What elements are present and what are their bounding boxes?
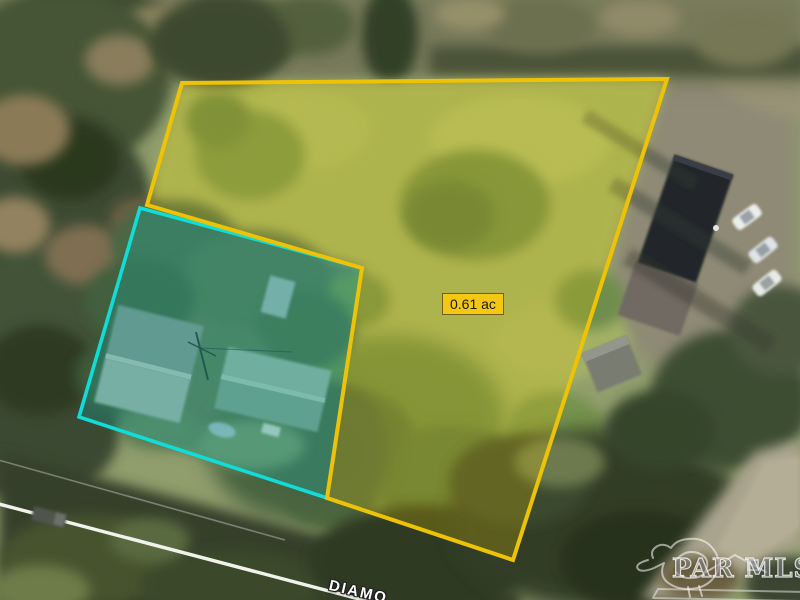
- parcel-area-label: 0.61 ac: [442, 293, 504, 315]
- map-scene: [0, 0, 800, 600]
- yard-object: [713, 225, 719, 231]
- mls-watermark-text: PAR MLS: [672, 554, 800, 584]
- aerial-map: 0.61 ac DIAMO PAR MLS: [0, 0, 800, 600]
